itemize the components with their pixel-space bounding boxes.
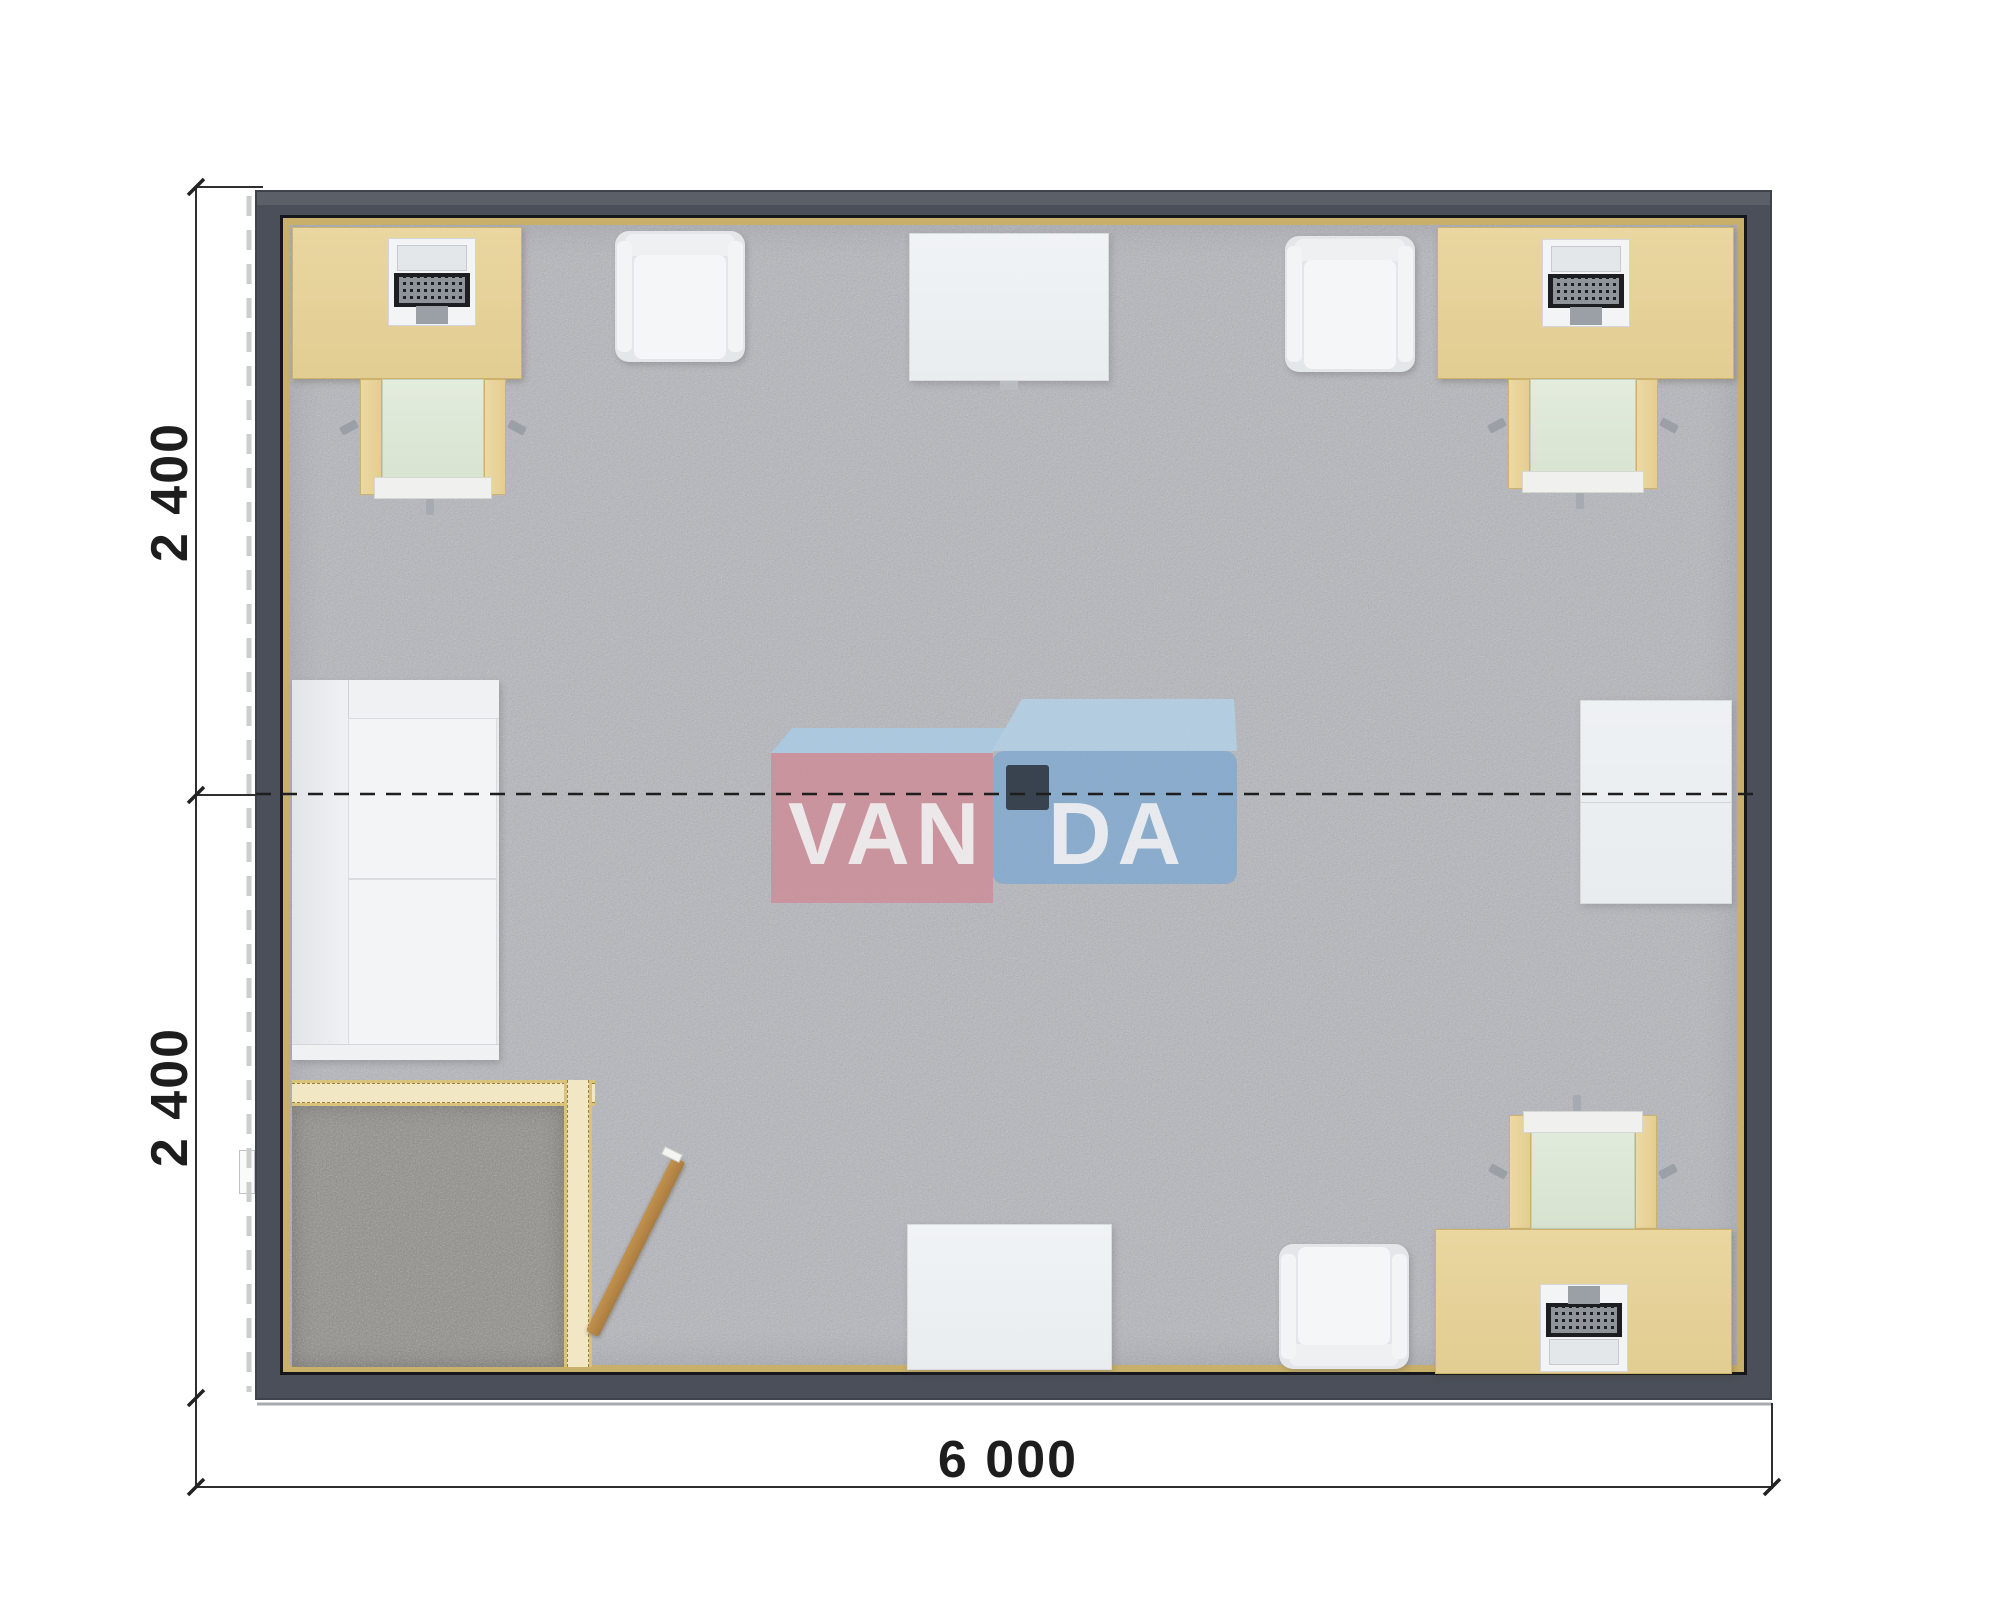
computer-2 bbox=[1542, 239, 1630, 327]
sofa-cushion bbox=[348, 879, 497, 1045]
dimension-label-left-top: 2 400 bbox=[140, 422, 200, 562]
task-chair-bottom-right[interactable] bbox=[1509, 1115, 1657, 1229]
cabinet-right[interactable] bbox=[1580, 700, 1732, 904]
armchair-bottom[interactable] bbox=[1279, 1244, 1409, 1369]
sofa-cushion bbox=[348, 718, 497, 879]
sofa-backrest bbox=[292, 680, 349, 1060]
exterior-door-mark bbox=[239, 1150, 255, 1194]
dimension-label-left-bottom: 2 400 bbox=[140, 1027, 200, 1167]
sofa-armrest-bottom bbox=[292, 1044, 499, 1060]
computer-3 bbox=[1540, 1284, 1628, 1372]
table-bottom-center[interactable] bbox=[907, 1224, 1112, 1370]
armchair-top-right[interactable] bbox=[1285, 236, 1415, 372]
keyboard-icon bbox=[394, 273, 470, 307]
vestibule-carpet-texture bbox=[292, 1105, 564, 1367]
floor-plan-canvas: VAN DA 2 400 bbox=[0, 0, 2000, 1598]
table-top-center[interactable] bbox=[909, 233, 1109, 381]
computer-1 bbox=[388, 238, 476, 326]
task-chair-top-right[interactable] bbox=[1508, 379, 1658, 489]
armchair-top-left[interactable] bbox=[615, 231, 745, 362]
vestibule-partition-top bbox=[292, 1080, 595, 1106]
sofa-left[interactable] bbox=[292, 680, 499, 1060]
building-walls: VAN DA bbox=[255, 190, 1772, 1400]
vestibule-floor bbox=[292, 1105, 564, 1367]
task-chair-top-left[interactable] bbox=[360, 379, 506, 495]
mouse-pad-icon bbox=[416, 306, 448, 324]
dimension-label-bottom: 6 000 bbox=[938, 1430, 1078, 1490]
floor-box bbox=[1006, 765, 1049, 810]
table-leg bbox=[1000, 381, 1018, 390]
monitor-icon bbox=[397, 245, 467, 271]
